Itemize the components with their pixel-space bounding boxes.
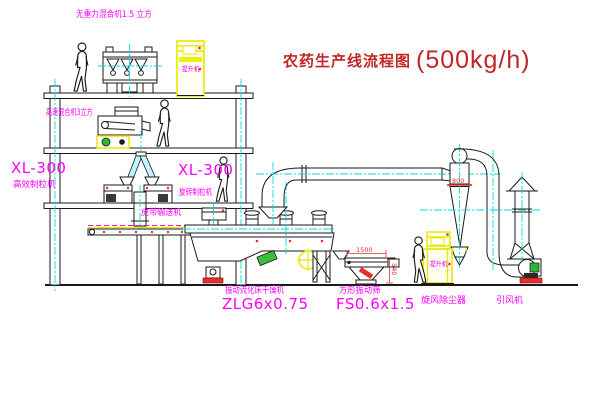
y-chute	[127, 152, 156, 179]
dim-screen-height: 540	[390, 263, 398, 275]
label-elevator-right: 提升机	[430, 261, 448, 268]
granulator-right	[144, 177, 172, 203]
drawing-title: 农药生产线流程图 (500kg/h)	[283, 46, 531, 75]
label-cyclone: 旋风除尘器	[421, 297, 466, 306]
label-granulator-left-model: XL-300	[11, 161, 66, 177]
label-elevator-top: 提升机	[182, 66, 200, 73]
induced-draft-fan	[519, 259, 543, 283]
belt-conveyor	[88, 226, 196, 285]
title-capacity: (500kg/h)	[416, 46, 531, 75]
label-belt-conveyor: 皮带输送机	[141, 209, 181, 218]
label-fan: 引风机	[496, 297, 523, 306]
cad-flow-diagram: 农药生产线流程图 (500kg/h) 无重力混合机1.5 立方 高速混合机3立方…	[0, 0, 600, 403]
bucket-elevator-right	[421, 232, 454, 284]
person-icon	[74, 43, 88, 91]
dim-screen-length: 1500	[356, 246, 373, 254]
label-granulator-right-name: 旋转制粒机	[179, 189, 212, 198]
label-speed-mixer: 高速混合机3立方	[46, 109, 93, 118]
label-dryer-model: ZLG6x0.75	[222, 297, 309, 313]
label-granulator-right-model: XL-300	[178, 163, 233, 179]
person-icon	[157, 100, 170, 146]
dim-cyclone-flange: 800	[452, 177, 464, 185]
gravity-free-mixer	[98, 44, 162, 97]
exhaust-stack	[506, 172, 538, 263]
label-gravity-mixer: 无重力混合机1.5 立方	[76, 11, 152, 20]
granulator-left	[104, 177, 134, 203]
label-granulator-left-name: 高效制粒机	[13, 181, 56, 190]
title-text: 农药生产线流程图	[283, 50, 411, 71]
label-screen-model: FS0.6x1.5	[336, 297, 415, 313]
